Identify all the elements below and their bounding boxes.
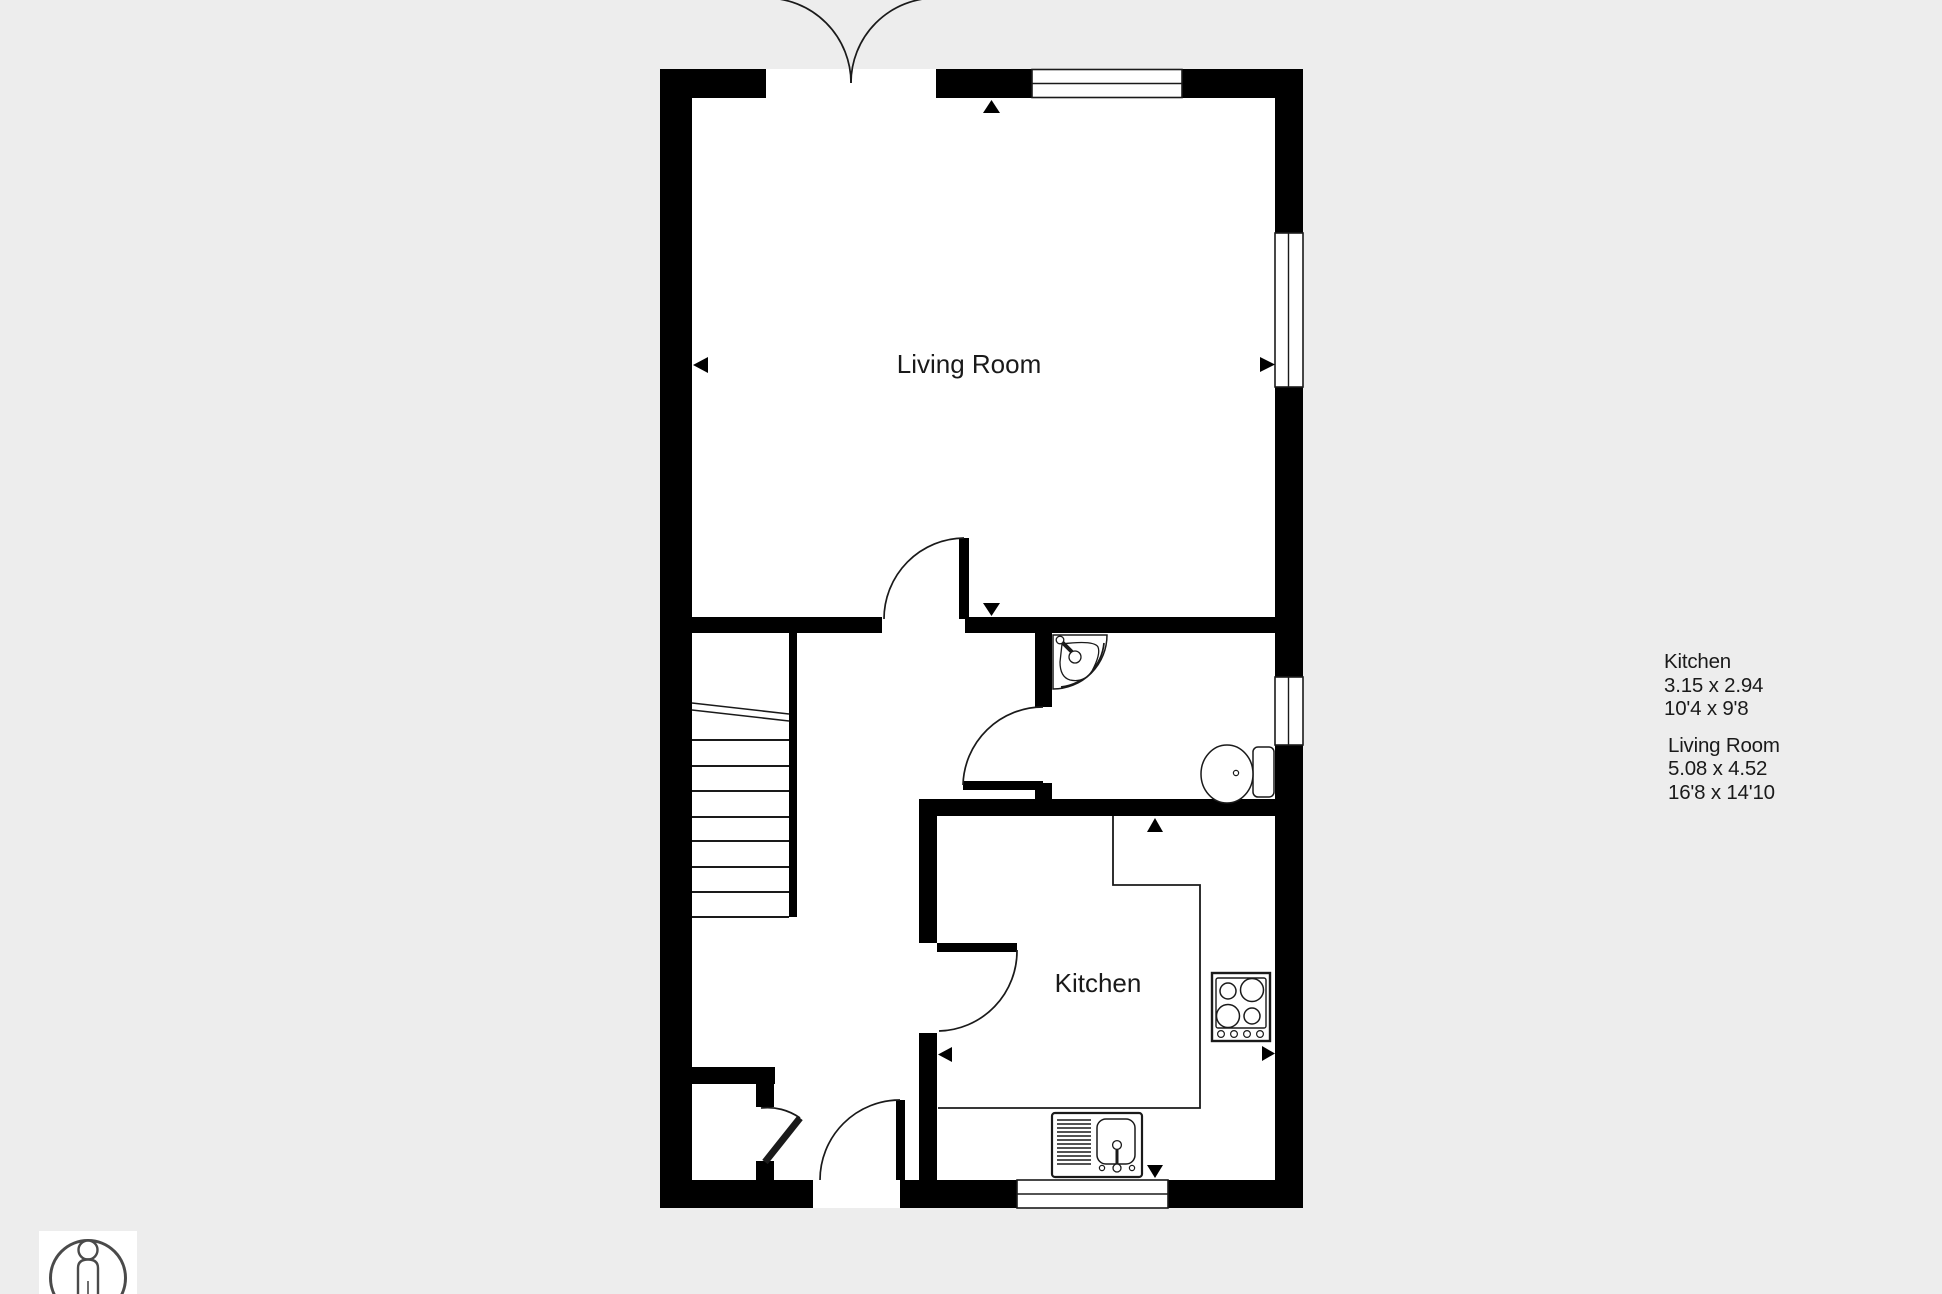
hob-burner <box>1244 1008 1260 1024</box>
wall-bottom-left <box>660 1180 813 1208</box>
bathroom-door-leaf <box>963 781 1043 790</box>
wall-bathroom-west-upper <box>1035 632 1052 707</box>
wall-kitchen-west-upper <box>919 799 937 943</box>
living-room-dimensions: Living Room 5.08 x 4.52 16'8 x 14'10 <box>1668 734 1780 805</box>
room-size-metric: 3.15 x 2.94 <box>1664 674 1780 698</box>
kitchen-door-leaf <box>937 943 1017 952</box>
hob-burner <box>1241 979 1264 1002</box>
front-door-leaf <box>896 1100 905 1180</box>
person-icon-head <box>79 1241 98 1260</box>
room-size-imperial: 16'8 x 14'10 <box>1668 781 1780 805</box>
room-name: Living Room <box>1668 734 1780 758</box>
sink-tap-handle <box>1099 1165 1104 1170</box>
wall-left <box>660 69 692 1208</box>
toilet-bowl <box>1201 745 1253 803</box>
wall-closet-top <box>692 1067 775 1084</box>
wall-livingroom-south-right <box>965 617 1275 633</box>
sink-tap-handle <box>1129 1165 1134 1170</box>
wall-kitchen-west-lower <box>919 1033 937 1180</box>
room-name: Kitchen <box>1664 650 1780 674</box>
floor-plan-page: Living Room Kitchen Kitchen 3.15 x 2.94 … <box>0 0 1942 1294</box>
kitchen-dimensions: Kitchen 3.15 x 2.94 10'4 x 9'8 <box>1664 650 1780 721</box>
hob-knob <box>1244 1031 1251 1038</box>
wall-livingroom-south-left <box>692 617 882 633</box>
hob-knob <box>1231 1031 1238 1038</box>
toilet-flush-dot <box>1233 770 1238 775</box>
floor-area <box>660 69 1303 1208</box>
dimensions-panel: Kitchen 3.15 x 2.94 10'4 x 9'8 Living Ro… <box>1664 650 1780 804</box>
wall-bottom-mid <box>900 1180 1017 1208</box>
floor-plan-drawing <box>0 0 1942 1294</box>
wall-kitchen-north <box>919 799 1303 816</box>
hob-knob <box>1218 1031 1225 1038</box>
wall-top-mid <box>936 69 1032 98</box>
wall-stairwell <box>789 632 797 917</box>
room-size-metric: 5.08 x 4.52 <box>1668 757 1780 781</box>
hob-icon <box>1212 973 1270 1041</box>
wall-bottom-right <box>1168 1180 1303 1208</box>
wall-closet-stub-lower <box>756 1161 774 1180</box>
hob-burner <box>1220 983 1236 999</box>
person-icon <box>39 1231 137 1294</box>
living-room-label: Living Room <box>897 351 1042 377</box>
wall-closet-stub-upper <box>756 1084 774 1107</box>
room-size-imperial: 10'4 x 9'8 <box>1664 697 1780 721</box>
toilet-icon <box>1201 745 1274 803</box>
hob-burner <box>1217 1005 1240 1028</box>
toilet-cistern <box>1253 747 1274 797</box>
livingroom-door-leaf <box>959 538 969 619</box>
kitchen-label: Kitchen <box>1055 970 1142 996</box>
hob-knob <box>1257 1031 1264 1038</box>
kitchen-sink-icon <box>1052 1113 1142 1177</box>
